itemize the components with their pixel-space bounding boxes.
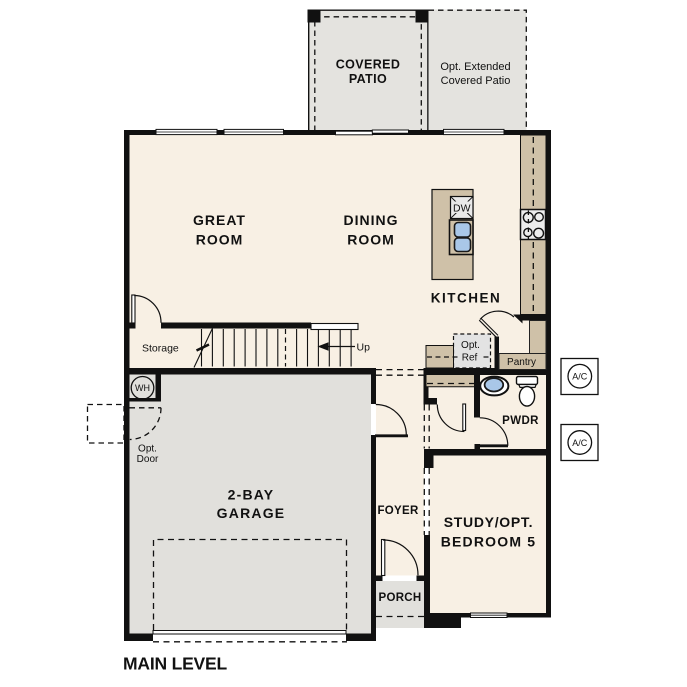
svg-text:WH: WH	[135, 383, 150, 393]
svg-text:Opt. Extended: Opt. Extended	[440, 61, 510, 73]
svg-text:FOYER: FOYER	[377, 505, 419, 517]
svg-text:PORCH: PORCH	[378, 592, 421, 604]
svg-text:Opt.: Opt.	[461, 340, 480, 351]
svg-text:BEDROOM 5: BEDROOM 5	[441, 534, 537, 550]
svg-text:ROOM: ROOM	[196, 231, 244, 247]
svg-text:KITCHEN: KITCHEN	[431, 291, 502, 306]
svg-text:Ref: Ref	[462, 353, 478, 364]
svg-text:Opt.: Opt.	[138, 444, 157, 455]
svg-text:A/C: A/C	[572, 438, 588, 448]
svg-text:MAIN LEVEL: MAIN LEVEL	[123, 654, 227, 674]
svg-text:STUDY/OPT.: STUDY/OPT.	[444, 514, 533, 530]
svg-text:GARAGE: GARAGE	[217, 505, 286, 521]
svg-text:Door: Door	[137, 454, 159, 465]
svg-text:DW: DW	[453, 203, 471, 215]
svg-text:Pantry: Pantry	[507, 357, 536, 368]
svg-text:Covered Patio: Covered Patio	[441, 75, 511, 87]
svg-text:PWDR: PWDR	[502, 415, 539, 427]
svg-text:ROOM: ROOM	[347, 231, 395, 247]
svg-text:PATIO: PATIO	[349, 72, 387, 86]
svg-text:COVERED: COVERED	[336, 58, 401, 72]
svg-text:A/C: A/C	[572, 372, 588, 382]
svg-text:Up: Up	[357, 342, 371, 354]
svg-text:DINING: DINING	[344, 212, 399, 228]
svg-text:GREAT: GREAT	[193, 212, 246, 228]
svg-text:2-BAY: 2-BAY	[228, 487, 275, 503]
svg-text:Storage: Storage	[142, 343, 179, 355]
